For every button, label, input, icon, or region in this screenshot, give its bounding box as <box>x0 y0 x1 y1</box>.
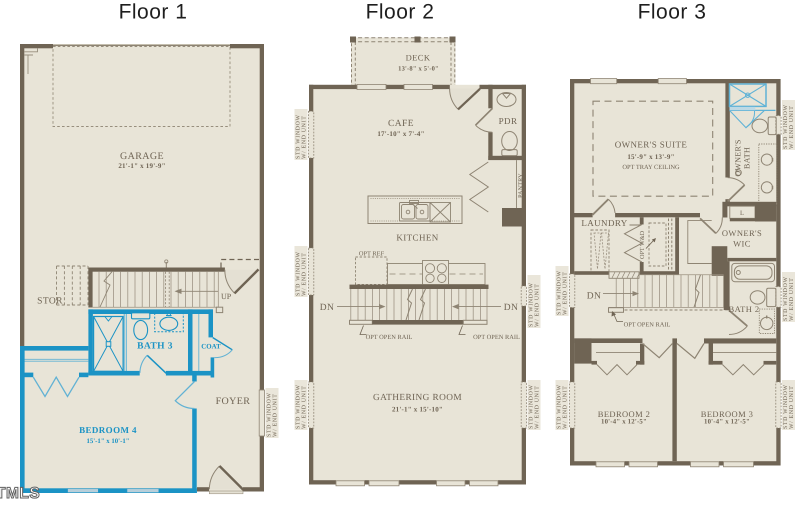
svg-text:BATH 2: BATH 2 <box>729 304 760 314</box>
svg-text:LAUNDRY: LAUNDRY <box>581 218 627 228</box>
svg-text:WIC: WIC <box>733 239 751 249</box>
svg-text:GARAGE: GARAGE <box>120 151 164 162</box>
svg-text:PDR: PDR <box>499 116 518 126</box>
svg-text:10'-4" x 12'-5": 10'-4" x 12'-5" <box>601 419 647 426</box>
svg-text:OWNER'S: OWNER'S <box>722 228 762 238</box>
svg-text:21'-1" x 19'-9": 21'-1" x 19'-9" <box>118 162 165 170</box>
svg-text:DN: DN <box>587 292 602 302</box>
svg-text:TMLS: TMLS <box>0 485 40 502</box>
svg-text:DN: DN <box>320 303 335 313</box>
svg-text:W/ END UNIT: W/ END UNIT <box>789 106 795 149</box>
svg-text:FOYER: FOYER <box>216 396 251 407</box>
svg-text:UP: UP <box>221 292 232 301</box>
svg-text:21'-1" x 15'-10": 21'-1" x 15'-10" <box>392 406 443 414</box>
svg-text:15'-9" x 13'-9": 15'-9" x 13'-9" <box>627 153 674 161</box>
svg-text:17'-10" x 7'-4": 17'-10" x 7'-4" <box>377 130 424 138</box>
svg-text:W/ END UNIT: W/ END UNIT <box>563 272 569 315</box>
svg-text:15'-1" x 10'-1": 15'-1" x 10'-1" <box>86 438 129 445</box>
svg-text:KITCHEN: KITCHEN <box>396 233 438 243</box>
svg-text:OPT OPEN RAIL: OPT OPEN RAIL <box>473 334 520 341</box>
svg-text:CAFE: CAFE <box>388 119 414 129</box>
svg-text:BEDROOM 2: BEDROOM 2 <box>598 409 650 419</box>
svg-text:10'-4" x 12'-5": 10'-4" x 12'-5" <box>704 419 750 426</box>
svg-text:COAT: COAT <box>201 343 221 350</box>
svg-text:W/ END UNIT: W/ END UNIT <box>302 253 308 296</box>
svg-text:W/ END UNIT: W/ END UNIT <box>789 386 795 429</box>
svg-text:STOR: STOR <box>37 297 63 307</box>
svg-text:W/ END UNIT: W/ END UNIT <box>302 116 308 159</box>
svg-text:BATH 3: BATH 3 <box>137 342 173 352</box>
svg-text:Floor 1: Floor 1 <box>119 1 188 24</box>
svg-text:BATH: BATH <box>743 147 752 169</box>
svg-text:DN: DN <box>504 303 519 313</box>
svg-text:Floor 2: Floor 2 <box>366 1 435 24</box>
svg-text:OPT TRAY CEILING: OPT TRAY CEILING <box>622 164 680 171</box>
svg-text:13'-8" x 5'-0": 13'-8" x 5'-0" <box>398 66 439 73</box>
svg-text:DECK: DECK <box>406 53 431 63</box>
svg-text:W/ END UNIT: W/ END UNIT <box>535 386 541 429</box>
svg-text:PANTRY: PANTRY <box>518 173 525 198</box>
svg-text:W/ END UNIT: W/ END UNIT <box>789 278 795 321</box>
svg-text:OPT W&D: OPT W&D <box>639 230 646 259</box>
svg-text:OPT OPEN RAIL: OPT OPEN RAIL <box>624 322 671 329</box>
svg-text:Floor 3: Floor 3 <box>638 1 707 24</box>
svg-text:W/ END UNIT: W/ END UNIT <box>563 386 569 429</box>
svg-text:BEDROOM 3: BEDROOM 3 <box>701 409 753 419</box>
svg-text:OPT OPEN RAIL: OPT OPEN RAIL <box>366 334 413 341</box>
svg-text:OPT REF: OPT REF <box>359 251 385 258</box>
svg-text:L: L <box>740 210 744 217</box>
svg-text:BEDROOM 4: BEDROOM 4 <box>79 425 137 435</box>
svg-text:GATHERING ROOM: GATHERING ROOM <box>373 393 462 403</box>
svg-text:W/ END UNIT: W/ END UNIT <box>535 284 541 327</box>
svg-text:OWNER'S SUITE: OWNER'S SUITE <box>615 140 688 150</box>
svg-text:W/ END UNIT: W/ END UNIT <box>302 386 308 429</box>
svg-text:OWNER'S: OWNER'S <box>734 139 743 176</box>
svg-text:W/ END UNIT: W/ END UNIT <box>273 394 279 437</box>
